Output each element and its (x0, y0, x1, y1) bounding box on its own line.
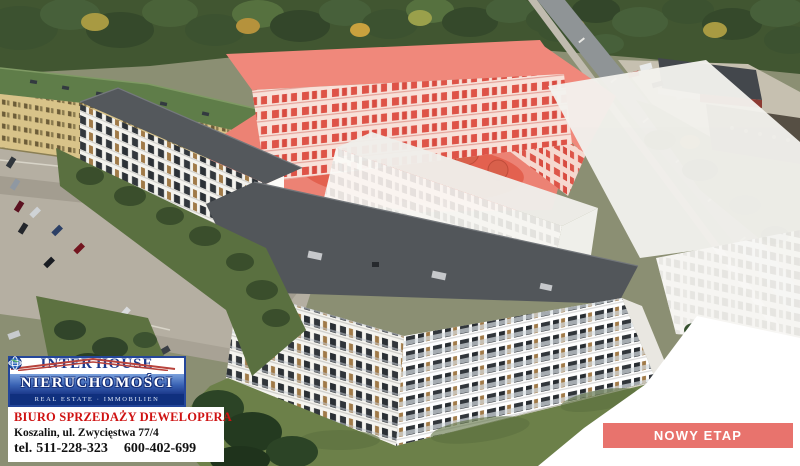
office-label: BIURO SPRZEDAŻY DEWELOPERA (14, 410, 218, 425)
new-phase-button[interactable]: NOWY ETAP (603, 423, 793, 448)
agency-logo-emblem: INTER HOUSE NIERUCHOMOŚCI REAL ESTATE · … (8, 356, 186, 407)
phone-number-1: 511-228-323 (36, 441, 108, 457)
contact-box: BIURO SPRZEDAŻY DEWELOPERA Koszalin, ul.… (8, 407, 224, 462)
agency-logo: INTER HOUSE NIERUCHOMOŚCI REAL ESTATE · … (8, 356, 224, 462)
address: Koszalin, ul. Zwycięstwa 77/4 (14, 427, 218, 439)
roof-icon (8, 357, 178, 371)
phone-prefix: tel. (14, 441, 32, 457)
brand-tagline: REAL ESTATE · IMMOBILIEN (10, 394, 184, 405)
brand-name-line2: NIERUCHOMOŚCI (10, 374, 184, 394)
phone-number-2: 600-402-699 (124, 441, 196, 457)
real-estate-ad: INTER HOUSE NIERUCHOMOŚCI REAL ESTATE · … (0, 0, 800, 466)
phone-numbers: tel. 511-228-323 600-402-699 (14, 441, 218, 457)
globe-icon (8, 356, 22, 370)
